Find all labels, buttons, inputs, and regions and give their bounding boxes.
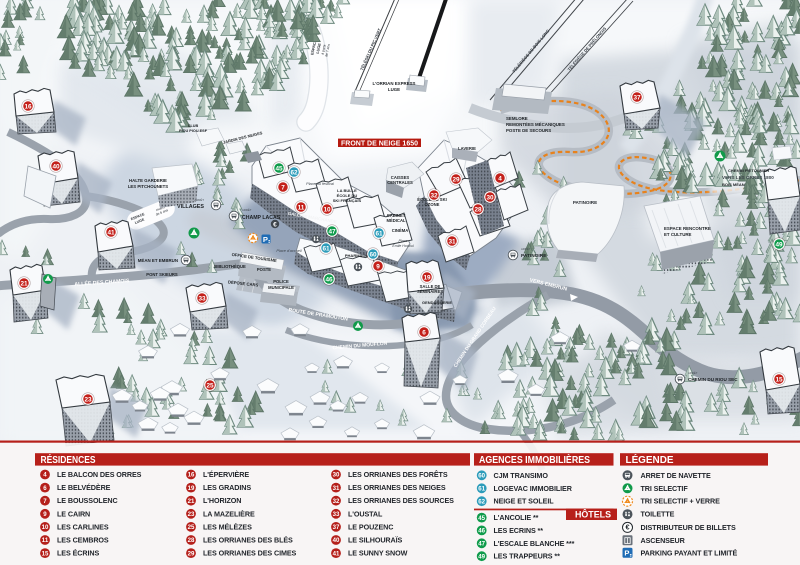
svg-text:LE SILHOURAÏS: LE SILHOURAÏS — [348, 536, 403, 545]
svg-text:LES PITCHOUNETS: LES PITCHOUNETS — [128, 184, 168, 189]
svg-text:TRI SELECTIF: TRI SELECTIF — [641, 484, 689, 493]
svg-text:33: 33 — [333, 511, 340, 518]
svg-text:31: 31 — [333, 485, 340, 492]
svg-text:MUNICIPALE: MUNICIPALE — [268, 285, 294, 290]
svg-text:CHEMIN PIÉTONNIER: CHEMIN PIÉTONNIER — [728, 168, 769, 173]
svg-text:HALTE GARDERIE: HALTE GARDERIE — [129, 178, 167, 183]
svg-text:CENTRALES: CENTRALES — [387, 180, 413, 185]
svg-text:BIBLIOTHÈQUE: BIBLIOTHÈQUE — [214, 264, 246, 269]
svg-text:11: 11 — [298, 204, 305, 211]
svg-text:30: 30 — [486, 194, 494, 201]
svg-text:37: 37 — [333, 524, 340, 531]
svg-text:NEIGE ET SOLEIL: NEIGE ET SOLEIL — [494, 497, 555, 506]
svg-text:CLUB: CLUB — [188, 124, 199, 128]
svg-text:6: 6 — [422, 329, 426, 336]
svg-text:LES ECRINS **: LES ECRINS ** — [494, 526, 544, 535]
svg-text:ARRÊT: ARRÊT — [521, 246, 531, 251]
svg-text:POSTE DE SECOURS: POSTE DE SECOURS — [506, 128, 551, 133]
svg-text:LES ORRIANES DES SOURCES: LES ORRIANES DES SOURCES — [348, 496, 454, 505]
svg-text:REMONTÉES MÉCANIQUES: REMONTÉES MÉCANIQUES — [506, 122, 565, 127]
svg-text:DISTRIBUTEUR DE BILLETS: DISTRIBUTEUR DE BILLETS — [641, 523, 736, 532]
svg-text:ARRÊT: ARRÊT — [688, 370, 698, 375]
svg-text:25: 25 — [206, 382, 214, 389]
svg-text:PIOU PIOU ESF: PIOU PIOU ESF — [179, 129, 208, 133]
svg-text:€: € — [626, 523, 630, 532]
svg-text:LES ORRIANES DES FORÊTS: LES ORRIANES DES FORÊTS — [348, 470, 448, 479]
svg-text:L'HORIZON: L'HORIZON — [203, 496, 241, 505]
svg-text:MÉDICAL: MÉDICAL — [386, 218, 406, 223]
svg-text:62: 62 — [478, 498, 485, 505]
svg-text:21: 21 — [20, 280, 28, 287]
svg-text:47: 47 — [328, 228, 336, 235]
svg-text:23: 23 — [84, 396, 92, 403]
svg-text:21: 21 — [188, 498, 195, 505]
svg-text:40: 40 — [52, 163, 60, 170]
svg-text:LAVERIE: LAVERIE — [458, 146, 476, 151]
svg-text:ESPACE RENCONTRE: ESPACE RENCONTRE — [664, 226, 711, 231]
svg-text:LE BELVÉDÈRE: LE BELVÉDÈRE — [57, 483, 111, 492]
svg-text:LÉGENDE: LÉGENDE — [626, 453, 674, 466]
svg-text:LE BALCON DES ORRES: LE BALCON DES ORRES — [57, 470, 142, 479]
svg-text:LES ORRIANES DES BLÉS: LES ORRIANES DES BLÉS — [203, 536, 293, 545]
svg-text:SKI FRANÇAIS: SKI FRANÇAIS — [333, 198, 362, 203]
svg-text:ARRET DE NAVETTE: ARRET DE NAVETTE — [641, 471, 711, 480]
svg-text:HÔTELS: HÔTELS — [575, 509, 612, 521]
svg-text:49: 49 — [775, 241, 783, 248]
svg-text:16: 16 — [24, 103, 32, 110]
svg-text:PHARMACIE: PHARMACIE — [345, 253, 370, 258]
svg-text:P: P — [263, 235, 268, 244]
svg-text:OZONE: OZONE — [425, 202, 440, 207]
svg-text:25: 25 — [188, 524, 195, 531]
svg-text:45: 45 — [275, 165, 283, 172]
svg-text:CHEMIN DU RIOU SEC: CHEMIN DU RIOU SEC — [688, 377, 738, 382]
svg-text:LE SUNNY SNOW: LE SUNNY SNOW — [348, 549, 408, 558]
svg-text:TOILETTE: TOILETTE — [641, 510, 675, 519]
svg-text:LES ÉCRINS: LES ÉCRINS — [57, 549, 99, 558]
svg-text:32: 32 — [430, 192, 438, 199]
svg-text:49: 49 — [478, 553, 485, 560]
svg-text:CJM TRANSIMO: CJM TRANSIMO — [494, 471, 549, 480]
svg-text:28: 28 — [474, 206, 482, 213]
svg-text:19: 19 — [423, 274, 431, 281]
svg-text:LE BOUSSOLENC: LE BOUSSOLENC — [57, 496, 118, 505]
svg-text:Place d'accueil: Place d'accueil — [276, 249, 301, 253]
svg-text:61: 61 — [478, 486, 485, 493]
svg-text:47: 47 — [478, 541, 485, 548]
svg-text:LA MAZELIÈRE: LA MAZELIÈRE — [203, 509, 255, 518]
svg-text:LES MÉLÈZES: LES MÉLÈZES — [203, 522, 252, 531]
svg-text:PATINOIRE: PATINOIRE — [573, 200, 597, 205]
svg-text:LES ORRIANES DES CIMES: LES ORRIANES DES CIMES — [203, 549, 297, 558]
svg-text:ASCENSEUR: ASCENSEUR — [641, 536, 686, 545]
svg-text:Émile Hodoul: Émile Hodoul — [392, 243, 414, 248]
svg-text:15: 15 — [42, 550, 49, 557]
svg-text:AGENCES IMMOBILIÈRES: AGENCES IMMOBILIÈRES — [479, 453, 590, 466]
svg-text:61: 61 — [375, 230, 383, 237]
svg-text:L'ORRIAN EXPRESS: L'ORRIAN EXPRESS — [372, 81, 415, 86]
svg-text:PARKING PAYANT ET LIMITÉ: PARKING PAYANT ET LIMITÉ — [641, 548, 738, 557]
svg-text:GENDARMERIE: GENDARMERIE — [422, 300, 452, 305]
svg-text:VILLAGES: VILLAGES — [177, 204, 204, 210]
svg-text:33: 33 — [198, 295, 206, 302]
svg-text:LES ORRIANES DES NEIGES: LES ORRIANES DES NEIGES — [348, 483, 446, 492]
svg-text:46: 46 — [478, 528, 485, 535]
svg-text:ARRÊT: ARRÊT — [242, 207, 252, 212]
svg-text:MÉAN ET EMBRUN: MÉAN ET EMBRUN — [138, 258, 178, 263]
svg-text:FRONT DE NEIGE 1650: FRONT DE NEIGE 1650 — [341, 141, 418, 148]
svg-text:L'ESCALE BLANCHE ***: L'ESCALE BLANCHE *** — [494, 539, 575, 548]
svg-text:30: 30 — [333, 472, 340, 479]
svg-text:ARRÊT: ARRÊT — [195, 197, 205, 202]
svg-text:41: 41 — [333, 550, 340, 557]
svg-text:POLICE: POLICE — [273, 279, 289, 284]
svg-text:45: 45 — [478, 515, 485, 522]
svg-text:60: 60 — [369, 251, 377, 258]
svg-text:€: € — [273, 222, 277, 229]
svg-text:PONT SKIEURS: PONT SKIEURS — [146, 272, 178, 277]
svg-text:CINÉMA: CINÉMA — [392, 228, 409, 233]
svg-text:LE POUZENC: LE POUZENC — [348, 522, 393, 531]
svg-text:L'OUSTAL: L'OUSTAL — [348, 509, 383, 518]
svg-text:29: 29 — [188, 550, 195, 557]
svg-text:31: 31 — [448, 238, 456, 245]
svg-text:60: 60 — [478, 473, 485, 480]
svg-text:10: 10 — [323, 206, 331, 213]
svg-text:LES GRADINS: LES GRADINS — [203, 483, 251, 492]
svg-text:LES CARLINES: LES CARLINES — [57, 522, 109, 531]
svg-text:SÉMINAIRES: SÉMINAIRES — [417, 289, 443, 294]
svg-text:LUGE: LUGE — [388, 87, 400, 92]
svg-text:29: 29 — [452, 176, 460, 183]
svg-text:BOIS MÉAN: BOIS MÉAN — [722, 182, 745, 187]
svg-text:40: 40 — [333, 537, 340, 544]
svg-text:16: 16 — [188, 472, 195, 479]
svg-text:41: 41 — [107, 229, 115, 236]
svg-text:SEMLORE: SEMLORE — [506, 116, 528, 121]
svg-text:LES TRAPPEURS **: LES TRAPPEURS ** — [494, 552, 561, 561]
svg-text:VERS LES ORRES 1800: VERS LES ORRES 1800 — [722, 175, 774, 180]
svg-text:10: 10 — [42, 524, 49, 531]
svg-text:P: P — [624, 549, 629, 558]
svg-text:23: 23 — [188, 511, 195, 518]
svg-text:19: 19 — [188, 485, 195, 492]
svg-text:15: 15 — [775, 376, 783, 383]
svg-text:7: 7 — [281, 184, 285, 191]
svg-text:9: 9 — [376, 263, 380, 270]
svg-text:28: 28 — [188, 537, 195, 544]
svg-text:37: 37 — [633, 94, 641, 101]
svg-text:L'ÉPERVIÈRE: L'ÉPERVIÈRE — [203, 470, 249, 479]
svg-text:ET CULTURE: ET CULTURE — [664, 232, 692, 237]
svg-text:Place: Place — [399, 239, 408, 243]
svg-text:32: 32 — [333, 498, 340, 505]
svg-text:LES CEMBROS: LES CEMBROS — [57, 536, 109, 545]
svg-text:L'ANCOLIE **: L'ANCOLIE ** — [494, 513, 539, 522]
svg-text:LE CAIRN: LE CAIRN — [57, 509, 90, 518]
svg-text:11: 11 — [42, 537, 49, 544]
svg-text:4: 4 — [498, 175, 502, 182]
svg-text:Place du festival: Place du festival — [306, 182, 334, 186]
svg-text:RÉSIDENCES: RÉSIDENCES — [41, 453, 96, 466]
svg-text:62: 62 — [290, 169, 298, 176]
svg-text:46: 46 — [325, 276, 333, 283]
svg-text:LOGEVAC IMMOBILIER: LOGEVAC IMMOBILIER — [494, 484, 573, 493]
svg-text:PATINOIRE: PATINOIRE — [521, 253, 547, 259]
svg-text:TRI SELECTIF + VERRE: TRI SELECTIF + VERRE — [641, 497, 721, 506]
svg-text:POSTE: POSTE — [257, 267, 271, 272]
svg-text:61: 61 — [322, 245, 330, 252]
